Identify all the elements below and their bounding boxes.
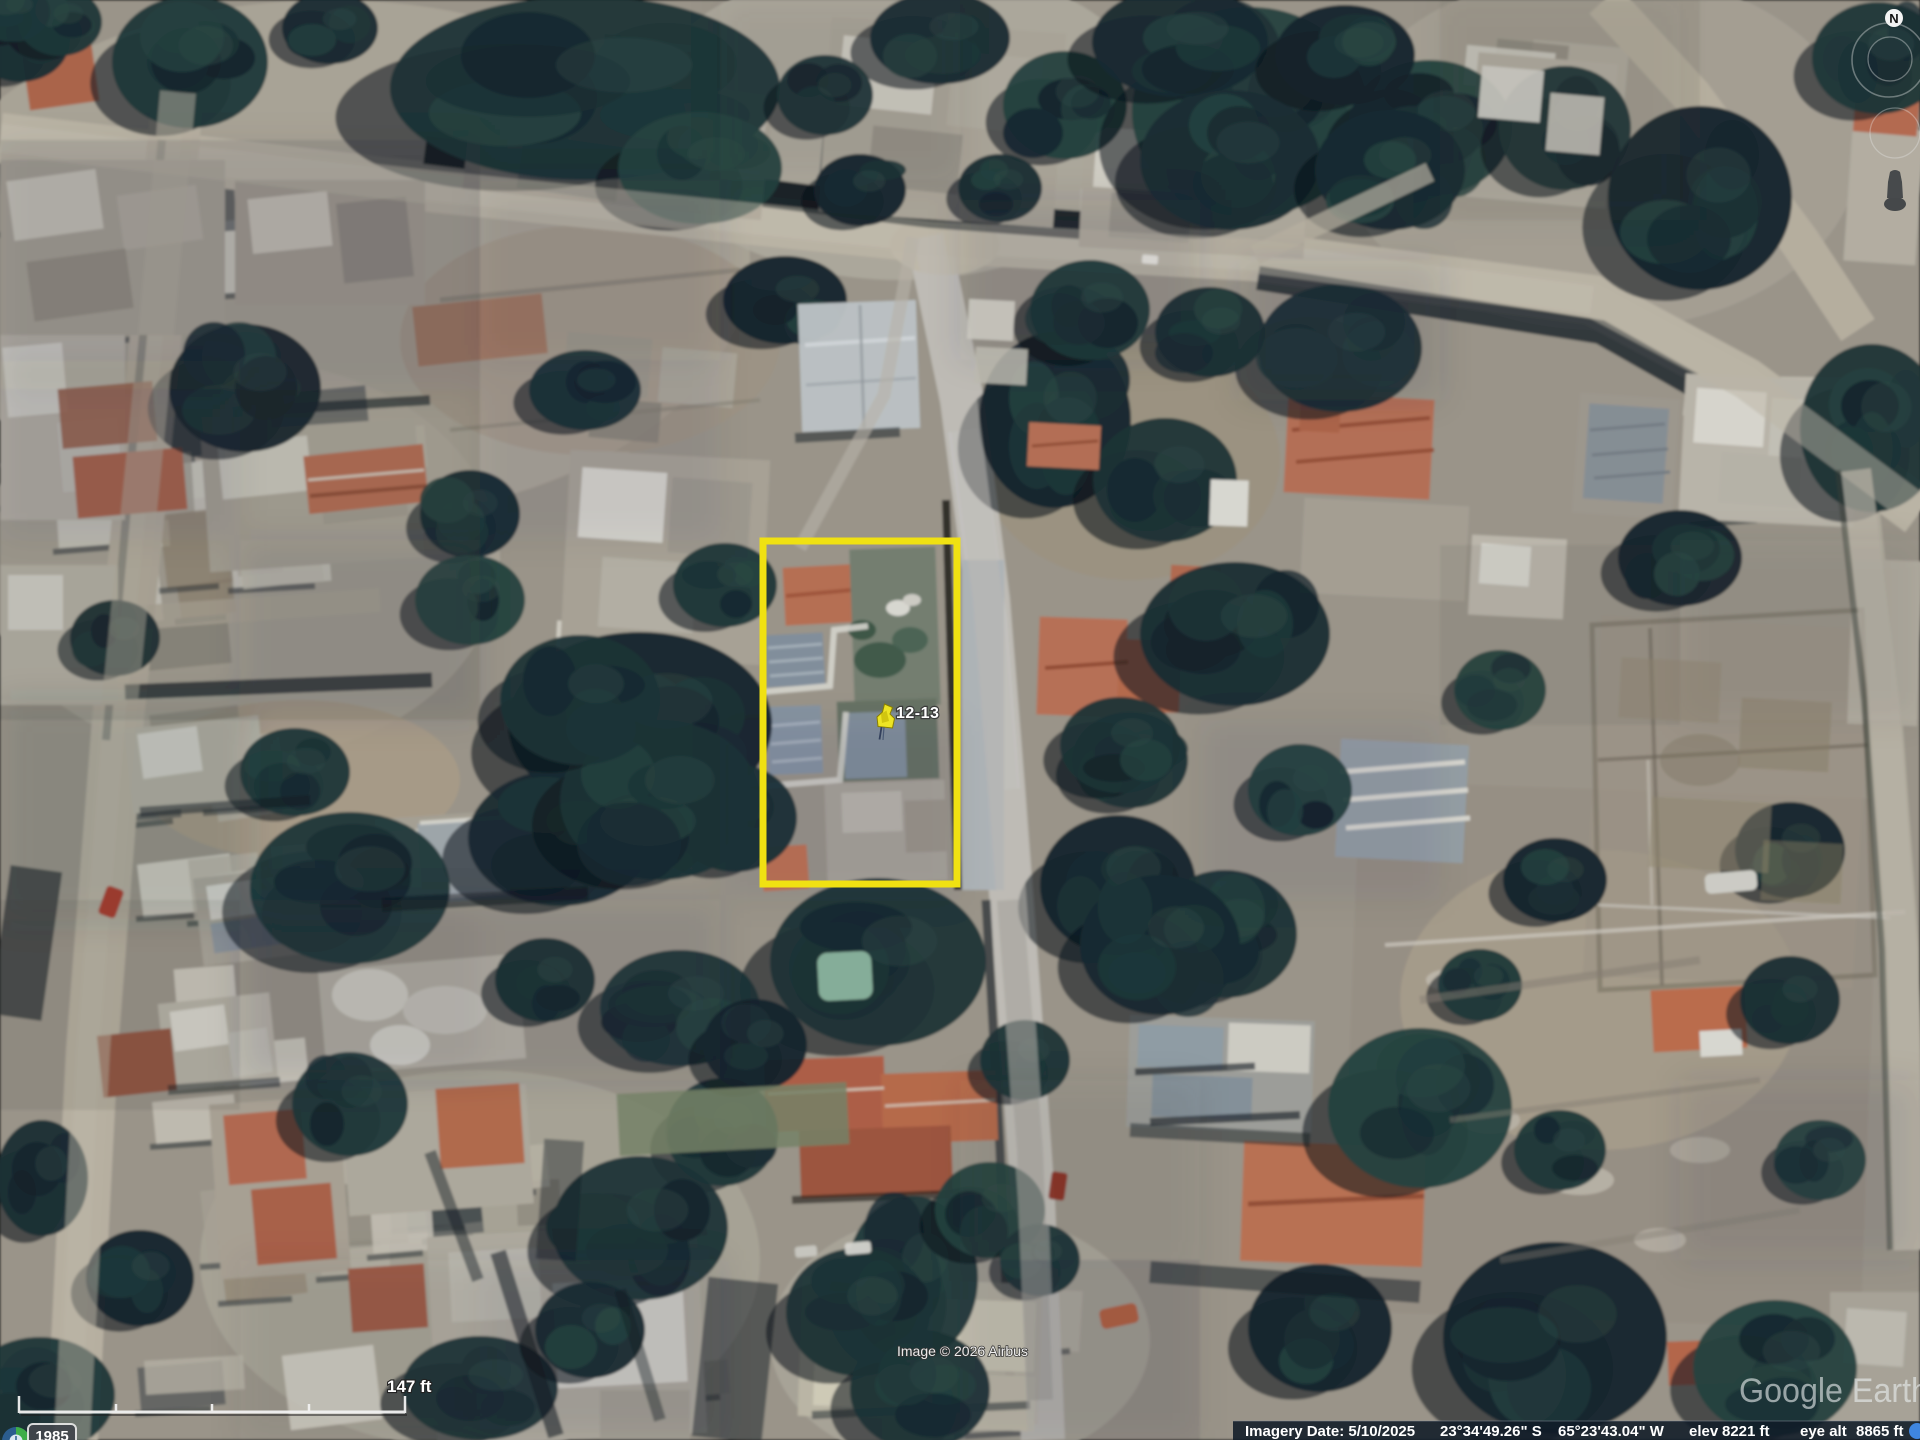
svg-text:Image © 2026 Airbus: Image © 2026 Airbus [897, 1343, 1028, 1359]
svg-text:23°34'49.26" S: 23°34'49.26" S [1440, 1423, 1542, 1440]
svg-text:1985: 1985 [35, 1428, 68, 1440]
svg-text:8865 ft: 8865 ft [1856, 1423, 1904, 1440]
svg-text:Google Earth: Google Earth [1739, 1372, 1920, 1410]
svg-text:eye alt: eye alt [1800, 1423, 1847, 1440]
svg-text:12-13: 12-13 [896, 705, 939, 722]
svg-text:8221 ft: 8221 ft [1722, 1423, 1770, 1440]
svg-text:147 ft: 147 ft [387, 1377, 432, 1396]
svg-text:Imagery Date: 5/10/2025: Imagery Date: 5/10/2025 [1245, 1423, 1415, 1440]
svg-text:65°23'43.04" W: 65°23'43.04" W [1558, 1423, 1665, 1440]
svg-text:elev: elev [1689, 1423, 1719, 1440]
